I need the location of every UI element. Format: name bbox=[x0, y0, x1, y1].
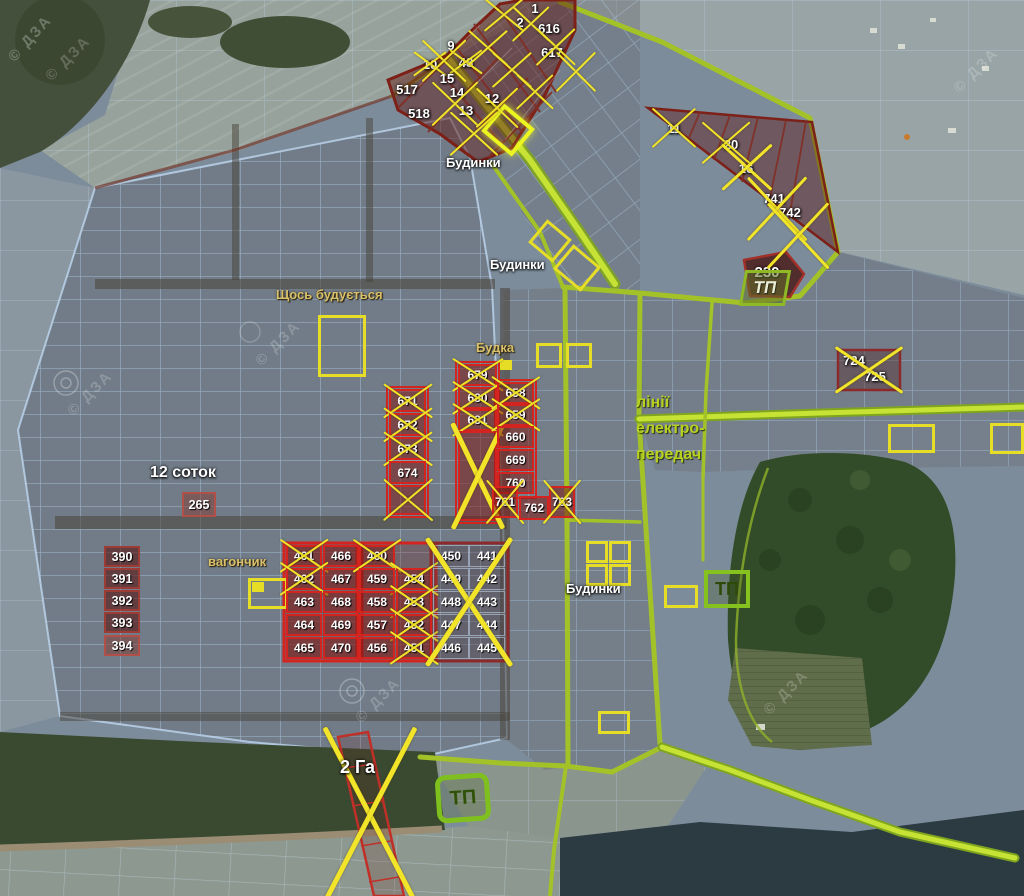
yellow-plot-outline bbox=[553, 244, 601, 292]
x-mark-arm bbox=[280, 539, 329, 573]
x-mark-arm bbox=[353, 539, 402, 573]
x-mark-arm bbox=[492, 52, 532, 88]
watermark: © ДЗА bbox=[42, 33, 94, 85]
x-mark-arm bbox=[835, 346, 904, 394]
x-mark-arm bbox=[390, 631, 439, 665]
x-mark-arm bbox=[491, 398, 541, 432]
plot-673: 673 bbox=[389, 437, 426, 460]
yellow-plot-outline bbox=[536, 343, 562, 368]
yellow-plot-outline bbox=[528, 219, 572, 263]
crossed-out-x-mark bbox=[704, 124, 748, 162]
x-mark-arm bbox=[451, 381, 503, 415]
yellow-plot-outline bbox=[586, 564, 608, 586]
plot-48: 48 bbox=[455, 55, 477, 69]
x-mark-arm bbox=[422, 40, 467, 83]
crossed-out-x-mark bbox=[478, 90, 516, 126]
crossed-out-x-mark bbox=[724, 146, 770, 188]
map-label: Щось будується bbox=[276, 288, 383, 302]
plot-450: 450 bbox=[433, 545, 469, 567]
x-mark-arm bbox=[767, 202, 830, 269]
plot-14: 14 bbox=[446, 85, 468, 99]
x-mark-arm bbox=[701, 122, 750, 165]
crossed-out-x-mark bbox=[538, 30, 574, 64]
x-mark-arm bbox=[486, 480, 525, 525]
plot-456: 456 bbox=[359, 637, 395, 659]
crossed-out-x-mark bbox=[750, 180, 804, 238]
crossed-out-x-mark bbox=[424, 42, 464, 80]
plot-458: 458 bbox=[359, 591, 395, 613]
plot-761: 761 bbox=[492, 486, 518, 518]
x-mark-arm bbox=[767, 202, 830, 269]
plot-12: 12 bbox=[482, 91, 502, 105]
crossed-out-x-mark bbox=[452, 114, 496, 154]
x-mark-arm bbox=[449, 111, 498, 156]
watermark: © ДЗА bbox=[950, 45, 1002, 97]
x-mark-arm bbox=[652, 108, 697, 149]
x-mark-arm bbox=[390, 562, 439, 596]
x-mark-arm bbox=[431, 82, 478, 127]
plot-452: 452 bbox=[396, 614, 432, 636]
plot-465: 465 bbox=[286, 637, 322, 659]
plot-460: 460 bbox=[359, 545, 395, 567]
plot-unnumbered bbox=[389, 485, 426, 515]
plot-13: 13 bbox=[455, 103, 477, 117]
x-mark-arm bbox=[390, 562, 439, 596]
plot-392: 392 bbox=[104, 590, 140, 611]
plot-265: 265 bbox=[182, 492, 216, 517]
yellow-marker-square bbox=[500, 360, 512, 370]
plot-445: 445 bbox=[469, 637, 505, 659]
plot-391: 391 bbox=[104, 568, 140, 589]
corner-watermark: © ДЗА bbox=[5, 12, 55, 65]
x-mark-arm bbox=[431, 82, 478, 127]
yellow-plot-outline bbox=[609, 564, 631, 586]
plot-680: 680 bbox=[458, 387, 497, 409]
plot-669: 669 bbox=[497, 449, 534, 471]
plot-463: 463 bbox=[286, 591, 322, 613]
map-label: 2 Га bbox=[340, 758, 375, 778]
map-label: 12 соток bbox=[150, 464, 216, 482]
plot-15: 15 bbox=[436, 71, 458, 86]
x-mark-arm bbox=[390, 631, 439, 665]
plot-762: 762 bbox=[519, 496, 549, 520]
transformer-station-marker: ТП bbox=[739, 270, 791, 306]
x-mark-arm bbox=[390, 585, 439, 619]
x-mark-arm bbox=[484, 0, 524, 32]
plot-394: 394 bbox=[104, 635, 140, 656]
plot-617: 617 bbox=[537, 45, 567, 60]
x-mark-arm bbox=[322, 726, 417, 896]
yellow-plot-outline bbox=[609, 541, 631, 563]
crossed-out-x-mark bbox=[486, 0, 522, 30]
x-mark-arm bbox=[413, 51, 447, 77]
x-mark-arm bbox=[486, 480, 525, 525]
plot-466: 466 bbox=[323, 545, 359, 567]
x-mark-arm bbox=[449, 49, 483, 75]
x-mark-arm bbox=[536, 28, 577, 66]
yellow-marker-square bbox=[252, 582, 264, 592]
x-mark-arm bbox=[701, 122, 750, 165]
x-mark-arm bbox=[556, 52, 597, 93]
x-mark-arm bbox=[383, 431, 433, 466]
plot-741: 741 bbox=[760, 191, 788, 206]
crossed-out-x-mark bbox=[430, 543, 508, 661]
x-mark-arm bbox=[451, 403, 503, 437]
satellite-map-viewport: © ДЗА © ДЗА© ДЗА© ДЗА© ДЗА© ДЗА© ДЗА1261… bbox=[0, 0, 1024, 896]
plot-470: 470 bbox=[323, 637, 359, 659]
yellow-plot-outline bbox=[664, 585, 698, 608]
plot-230: 230 bbox=[750, 263, 784, 281]
plot-457: 457 bbox=[359, 614, 395, 636]
plot-459: 459 bbox=[359, 568, 395, 590]
plot-unnumbered bbox=[458, 431, 497, 521]
watermark: © ДЗА bbox=[760, 667, 812, 719]
watermark: © ДЗА bbox=[252, 318, 304, 370]
plot-658: 658 bbox=[497, 382, 534, 404]
plot-451: 451 bbox=[396, 637, 432, 659]
x-mark-arm bbox=[491, 398, 541, 432]
x-mark-arm bbox=[383, 383, 433, 418]
map-label: Будинки bbox=[490, 258, 545, 272]
crossed-out-x-mark bbox=[838, 349, 900, 391]
x-mark-arm bbox=[425, 537, 513, 667]
x-mark-arm bbox=[322, 726, 417, 896]
crossed-out-x-mark bbox=[770, 206, 826, 266]
x-mark-arm bbox=[543, 480, 582, 525]
yellow-plot-outline bbox=[598, 711, 630, 734]
yellow-plot-outline bbox=[990, 423, 1024, 454]
plot-443: 443 bbox=[469, 591, 505, 613]
x-mark-arm bbox=[390, 608, 439, 642]
plot-20: 20 bbox=[720, 137, 742, 152]
plot-444: 444 bbox=[469, 614, 505, 636]
watermark: © ДЗА bbox=[352, 675, 404, 727]
yellow-plot-outline bbox=[586, 541, 608, 563]
plot-441: 441 bbox=[469, 545, 505, 567]
plot-447: 447 bbox=[433, 614, 469, 636]
plot-390: 390 bbox=[104, 546, 140, 567]
crossed-out-x-mark bbox=[328, 734, 412, 896]
plot-448: 448 bbox=[433, 591, 469, 613]
x-mark-arm bbox=[390, 608, 439, 642]
plot-449: 449 bbox=[433, 568, 469, 590]
x-mark-arm bbox=[382, 479, 432, 522]
x-mark-arm bbox=[450, 422, 505, 530]
x-mark-arm bbox=[280, 539, 329, 573]
x-mark-arm bbox=[721, 143, 772, 190]
plot-1: 1 bbox=[526, 1, 544, 15]
x-mark-arm bbox=[280, 562, 329, 596]
x-mark-arm bbox=[383, 407, 433, 442]
plot-469: 469 bbox=[323, 614, 359, 636]
x-mark-arm bbox=[451, 358, 503, 392]
crossed-out-x-mark bbox=[434, 84, 476, 124]
plot-446: 446 bbox=[433, 637, 469, 659]
x-mark-arm bbox=[382, 479, 432, 522]
x-mark-arm bbox=[476, 88, 519, 129]
x-mark-arm bbox=[652, 108, 697, 149]
crossed-out-x-mark bbox=[470, 32, 506, 64]
plot-393: 393 bbox=[104, 612, 140, 633]
map-label: Будинки bbox=[566, 582, 621, 596]
x-mark-arm bbox=[536, 28, 577, 66]
x-mark-arm bbox=[543, 480, 582, 525]
plot-681: 681 bbox=[458, 409, 497, 431]
plot-462: 462 bbox=[286, 568, 322, 590]
plot-464: 464 bbox=[286, 614, 322, 636]
plot-674: 674 bbox=[389, 461, 426, 484]
x-mark-arm bbox=[556, 52, 597, 93]
x-mark-arm bbox=[451, 381, 503, 415]
plot-10: 10 bbox=[419, 57, 441, 71]
x-mark-arm bbox=[484, 0, 524, 32]
crossed-out-x-mark bbox=[654, 110, 694, 146]
yellow-plot-outline bbox=[318, 315, 366, 377]
x-mark-arm bbox=[747, 177, 808, 242]
plot-518: 518 bbox=[403, 105, 435, 121]
plot-763: 763 bbox=[549, 486, 575, 518]
plot-454: 454 bbox=[396, 568, 432, 590]
x-mark-arm bbox=[450, 422, 505, 530]
map-label: вагончик bbox=[208, 555, 266, 569]
map-label: лінії bbox=[636, 394, 669, 412]
plot-725: 725 bbox=[862, 369, 888, 383]
plot-679: 679 bbox=[458, 364, 497, 386]
x-mark-arm bbox=[383, 431, 433, 466]
x-mark-arm bbox=[425, 537, 513, 667]
x-mark-arm bbox=[390, 585, 439, 619]
annotation-overlay: © ДЗА © ДЗА© ДЗА© ДЗА© ДЗА© ДЗА© ДЗА1261… bbox=[0, 0, 1024, 896]
yellow-plot-outline bbox=[888, 424, 935, 453]
x-mark-arm bbox=[491, 376, 541, 410]
plot-442: 442 bbox=[469, 568, 505, 590]
x-mark-arm bbox=[280, 562, 329, 596]
x-mark-arm bbox=[492, 52, 532, 88]
plot-453: 453 bbox=[396, 591, 432, 613]
x-mark-arm bbox=[721, 143, 772, 190]
crossed-out-x-mark bbox=[518, 76, 552, 108]
x-mark-arm bbox=[516, 74, 554, 110]
watermark: © ДЗА bbox=[64, 368, 116, 420]
crossed-out-x-mark bbox=[558, 54, 594, 90]
map-label: електро- bbox=[636, 420, 704, 438]
x-mark-arm bbox=[383, 407, 433, 442]
plot-468: 468 bbox=[323, 591, 359, 613]
plot-659: 659 bbox=[497, 404, 534, 426]
x-mark-arm bbox=[449, 111, 498, 156]
plot-9: 9 bbox=[443, 38, 459, 52]
transformer-station-marker: ТП bbox=[434, 772, 491, 824]
x-mark-arm bbox=[422, 40, 467, 83]
plot-517: 517 bbox=[391, 81, 423, 97]
transformer-station-marker: ТП bbox=[704, 570, 750, 608]
x-mark-arm bbox=[512, 6, 550, 42]
x-mark-arm bbox=[451, 358, 503, 392]
yellow-plot-outline bbox=[481, 103, 535, 156]
map-label: передач bbox=[636, 446, 701, 464]
plot-671: 671 bbox=[389, 389, 426, 412]
plot-760: 760 bbox=[497, 472, 534, 494]
plot-724: 724 bbox=[841, 353, 867, 367]
crossed-out-x-mark bbox=[494, 54, 530, 86]
plot-461: 461 bbox=[286, 545, 322, 567]
x-mark-arm bbox=[476, 88, 519, 129]
plot-742: 742 bbox=[776, 205, 804, 220]
x-mark-arm bbox=[747, 177, 808, 242]
x-mark-arm bbox=[449, 49, 483, 75]
yellow-plot-outline bbox=[566, 343, 592, 368]
plot-467: 467 bbox=[323, 568, 359, 590]
map-label: Будинки bbox=[446, 156, 501, 170]
x-mark-arm bbox=[383, 383, 433, 418]
map-label: Будка bbox=[476, 341, 514, 355]
x-mark-arm bbox=[516, 74, 554, 110]
crossed-out-x-mark bbox=[514, 8, 548, 40]
plot-616: 616 bbox=[534, 21, 564, 36]
yellow-plot-outline bbox=[248, 578, 288, 609]
x-mark-arm bbox=[491, 376, 541, 410]
x-mark-arm bbox=[468, 30, 508, 66]
plot-660: 660 bbox=[497, 426, 534, 448]
x-mark-arm bbox=[835, 346, 904, 394]
x-mark-arm bbox=[468, 30, 508, 66]
plot-2: 2 bbox=[512, 15, 528, 29]
x-mark-arm bbox=[413, 51, 447, 77]
x-mark-arm bbox=[353, 539, 402, 573]
x-mark-arm bbox=[512, 6, 550, 42]
plot-16: 16 bbox=[736, 161, 756, 176]
x-mark-arm bbox=[451, 403, 503, 437]
plot-672: 672 bbox=[389, 413, 426, 436]
plot-11: 11 bbox=[664, 121, 684, 136]
